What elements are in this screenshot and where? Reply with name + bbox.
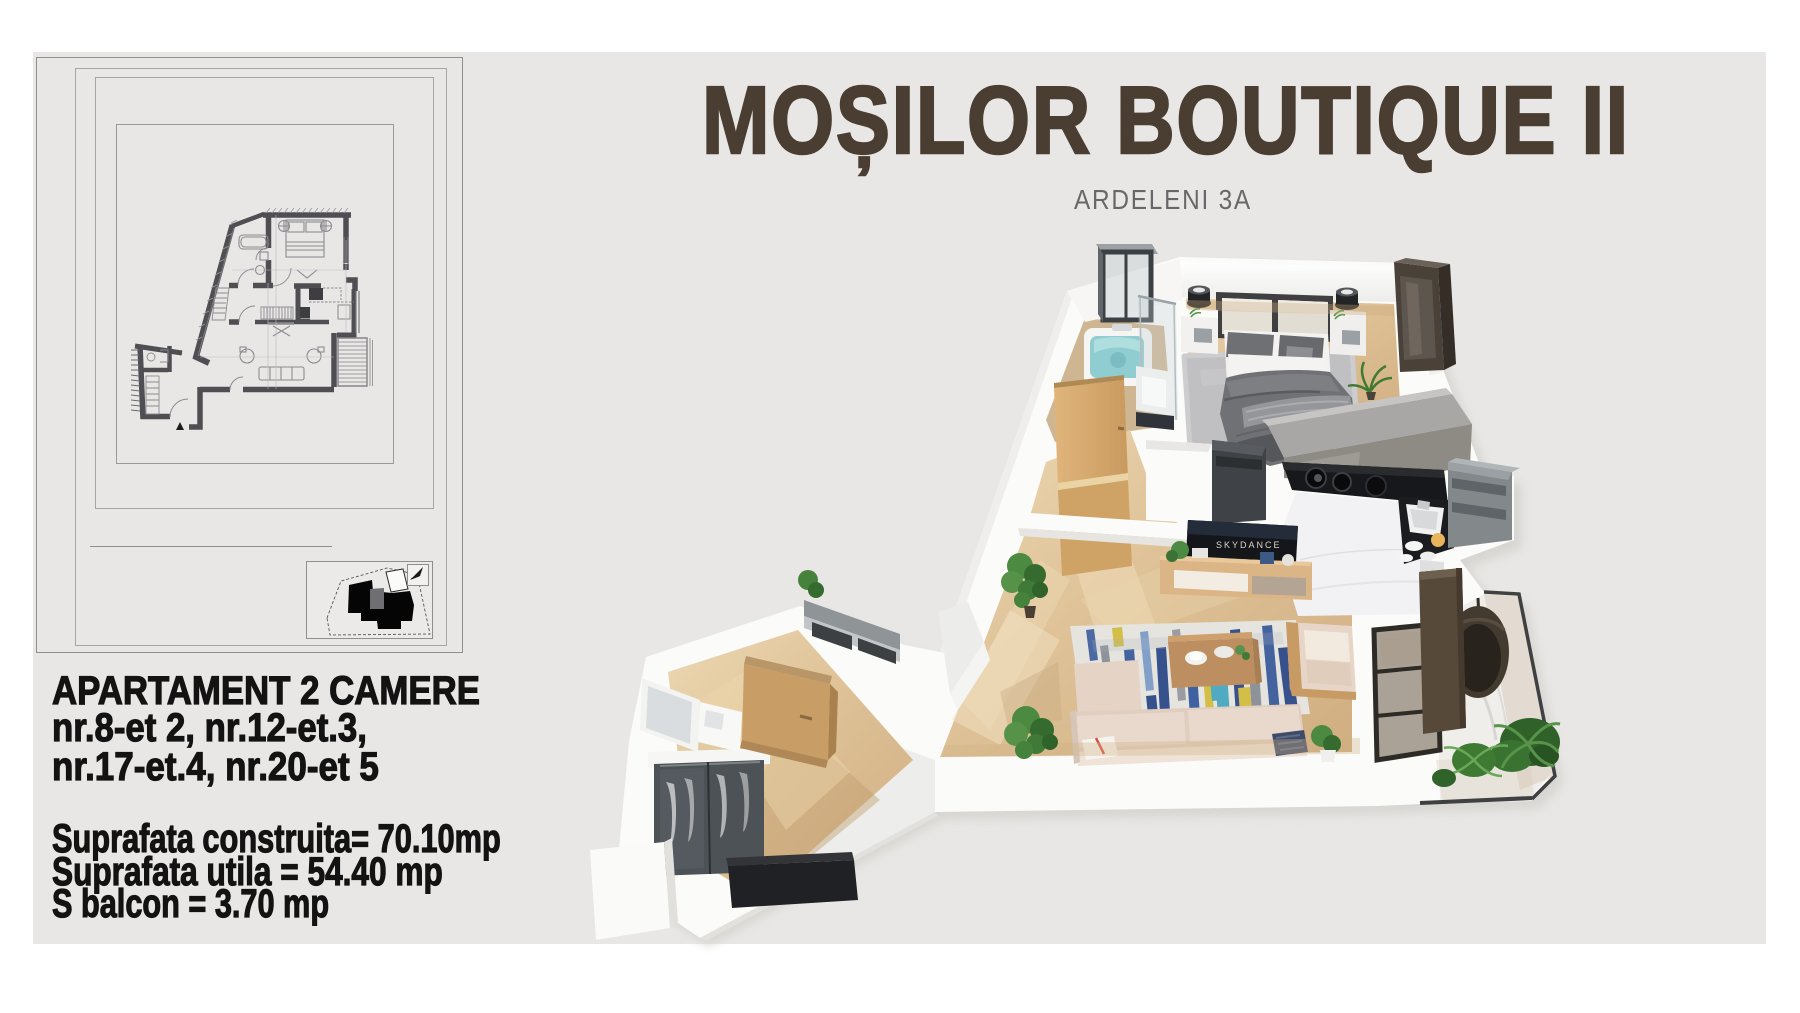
svg-text:SKYDANCE: SKYDANCE (1216, 540, 1282, 550)
